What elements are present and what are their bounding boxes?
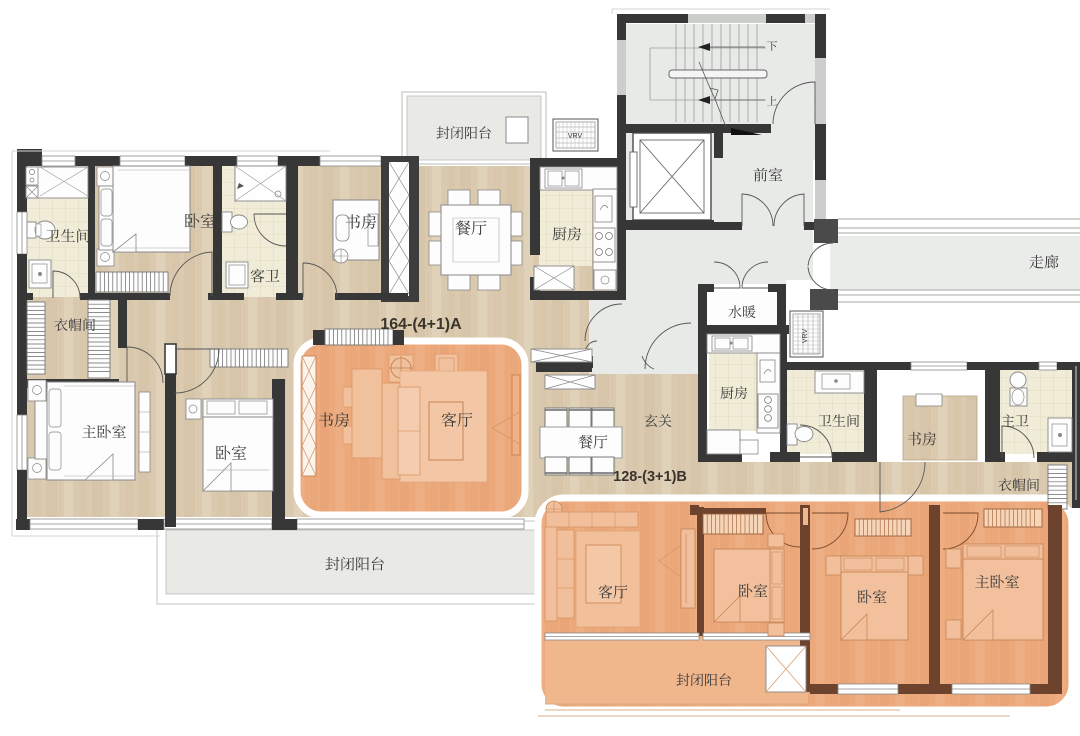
svg-text:VRV: VRV [568,133,583,140]
svg-text:VRV: VRV [802,329,809,344]
svg-text:164-(4+1)A: 164-(4+1)A [380,316,462,333]
svg-text:128-(3+1)B: 128-(3+1)B [613,469,687,485]
